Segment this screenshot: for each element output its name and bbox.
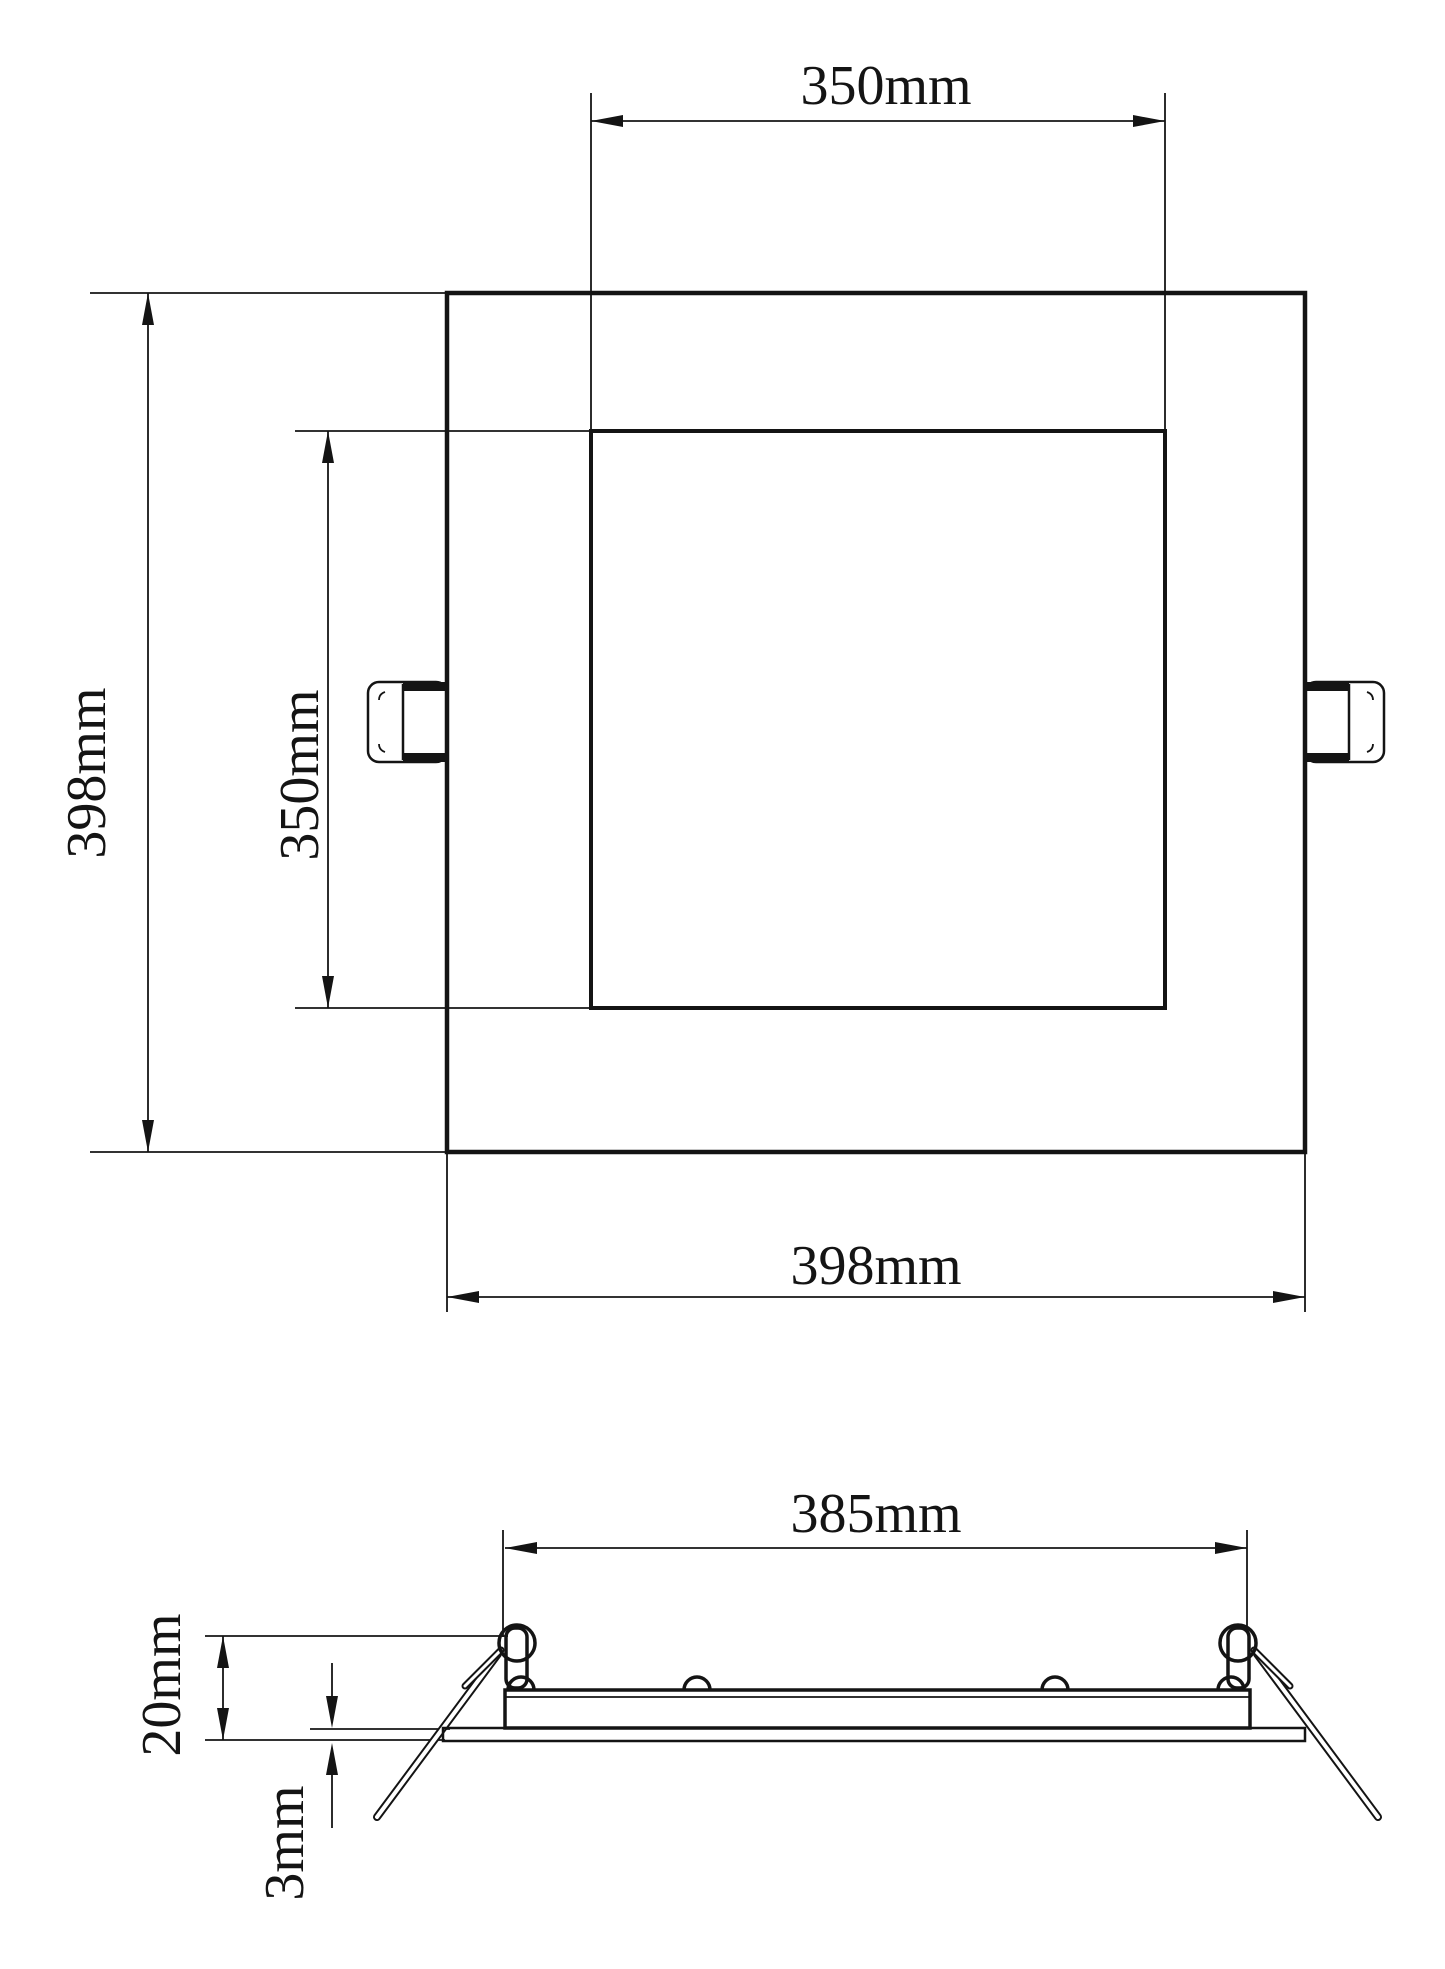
side-view: 385mm 20mm 3mm: [131, 1483, 1378, 1901]
arrowhead-up: [217, 1636, 229, 1668]
arrowhead-left: [591, 115, 623, 127]
clip-hook: [1367, 744, 1373, 752]
mounting-clip-left: [368, 682, 447, 762]
dim-label-top-inner-width: 350mm: [800, 55, 971, 117]
dim-label-inner-height: 350mm: [269, 689, 331, 860]
front-view: 350mm 398mm 350mm 398mm: [56, 55, 1384, 1312]
dim-label-outer-width: 398mm: [790, 1235, 961, 1297]
panel-inner-light-area: [591, 431, 1165, 1008]
dimension-top-inner-width: 350mm: [591, 55, 1165, 431]
dim-label-outer-height: 398mm: [56, 687, 118, 858]
spring-arm-core: [1257, 1654, 1378, 1817]
rivet-dome: [1042, 1677, 1068, 1690]
clip-hook: [379, 692, 385, 700]
clip-body: [368, 682, 447, 762]
clip-bottom-bar: [1305, 753, 1349, 762]
arrowhead-right: [1133, 115, 1165, 127]
mounting-clip-right: [1305, 682, 1384, 762]
dimension-cutout-width: 385mm: [503, 1483, 1247, 1637]
spring-arm-core: [377, 1654, 498, 1817]
dimension-left-inner-height: 350mm: [269, 431, 592, 1008]
panel-outer-frame: [447, 293, 1305, 1152]
arrowhead-down: [142, 1120, 154, 1152]
arrowhead-up: [326, 1743, 338, 1775]
clip-top-bar: [403, 682, 447, 691]
panel-body-section: [505, 1677, 1250, 1728]
dimension-left-outer-height: 398mm: [56, 293, 447, 1152]
technical-drawing-page: 350mm 398mm 350mm 398mm: [0, 0, 1445, 1969]
arrowhead-down: [326, 1696, 338, 1728]
dimension-flange-thickness: 3mm: [254, 1663, 450, 1901]
arrowhead-down: [322, 976, 334, 1008]
clip-hook: [1367, 692, 1373, 700]
dim-label-flange-thickness: 3mm: [254, 1785, 316, 1900]
drawing-canvas: 350mm 398mm 350mm 398mm: [0, 0, 1445, 1969]
arrowhead-up: [322, 431, 334, 463]
clip-body: [1305, 682, 1384, 762]
flange-plate: [443, 1728, 1305, 1741]
clip-top-bar: [1305, 682, 1349, 691]
arrowhead-left: [505, 1542, 537, 1554]
rivet-dome: [684, 1677, 710, 1690]
body-outline: [505, 1690, 1250, 1728]
arrowhead-right: [1273, 1291, 1305, 1303]
dimension-bottom-outer-width: 398mm: [447, 1152, 1305, 1312]
spring-clip-right: [1254, 1650, 1378, 1817]
arrowhead-up: [142, 293, 154, 325]
arrowhead-down: [217, 1708, 229, 1740]
spring-clip-left: [377, 1650, 501, 1817]
clip-hook: [379, 744, 385, 752]
dimension-recess-height: 20mm: [131, 1613, 508, 1756]
dim-label-cutout-width: 385mm: [790, 1483, 961, 1545]
dim-label-recess-height: 20mm: [131, 1613, 193, 1756]
arrowhead-right: [1215, 1542, 1247, 1554]
arrowhead-left: [447, 1291, 479, 1303]
clip-bottom-bar: [403, 753, 447, 762]
